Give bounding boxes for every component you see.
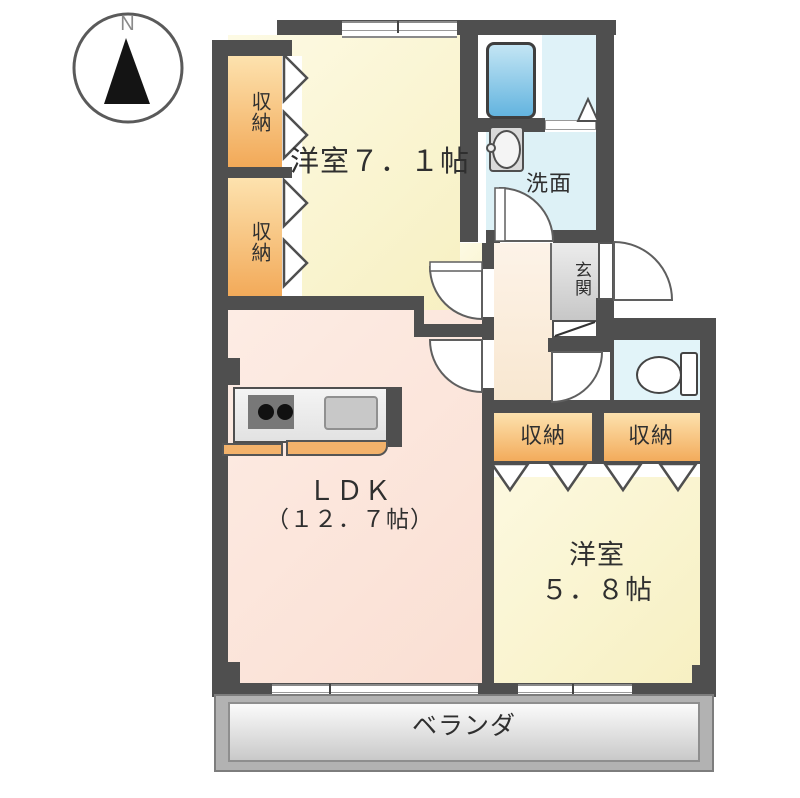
wall-wash-bottom-l: [486, 230, 500, 243]
window-top: [342, 21, 457, 38]
closet3-label: 収納: [500, 424, 586, 447]
front-door-leaf: [598, 242, 614, 300]
wall-bed1-ldk: [212, 296, 424, 310]
stove-burner-icon: [258, 404, 274, 420]
toilet-bowl-icon: [636, 356, 682, 394]
closet4-label: 収納: [608, 424, 694, 447]
hallway: [494, 243, 552, 402]
wall-corner-bl: [212, 662, 240, 695]
bedroom2-label-line1: 洋室: [497, 541, 697, 569]
wall-closet34-divider: [592, 413, 604, 463]
wall-mid-horizontal: [482, 400, 712, 413]
wall-entrance-bottom: [548, 338, 614, 352]
ldk-label-line1: ＬＤＫ: [250, 477, 450, 505]
door-arc-front-door: [614, 242, 672, 300]
wall-hall-entrance-line: [550, 243, 552, 320]
bedroom2-label-line2: ５．８帖: [497, 576, 697, 604]
wall-jog: [414, 296, 424, 337]
wall-counter-stub: [388, 387, 402, 447]
wall-left-lower: [212, 296, 228, 697]
wall-toilet-vest-line: [610, 352, 614, 400]
window-glass-line: [272, 692, 478, 693]
bath-sill: [545, 120, 596, 130]
bathtub: [486, 42, 536, 119]
entrance-step: [552, 320, 598, 338]
kitchen-ledge-left: [222, 443, 283, 456]
toilet-tank-icon: [680, 352, 698, 396]
toilet-vestibule: [552, 352, 612, 400]
closet2-label: 収納: [239, 204, 269, 280]
wall-closet34-bottom-line: [494, 461, 700, 464]
window-tick: [397, 21, 399, 33]
window-glass-line: [342, 30, 457, 31]
compass-north-label: N: [112, 14, 144, 35]
washbasin-bowl-icon: [492, 130, 521, 169]
entrance-label: 玄関: [564, 247, 590, 311]
kitchen-ledge-right: [286, 440, 388, 456]
wall-ldk-topright: [424, 324, 494, 337]
floor-plan: N 洋室７．１帖 洗面 玄関 収納 収納 収納 収納 ＬＤＫ （１２．７帖） 洋…: [0, 0, 800, 798]
wall-corner-br: [692, 665, 702, 695]
ldk-label-line2: （１２．７帖）: [240, 507, 460, 531]
wall-kitchen-stub: [212, 358, 240, 385]
window-glass-line: [518, 692, 632, 693]
wall-right-upper: [596, 20, 614, 242]
kitchen-sink-icon: [324, 396, 378, 430]
wall-hall-west-a: [482, 243, 494, 269]
closet1-label: 収納: [239, 74, 269, 150]
wall-right-lower: [700, 318, 716, 697]
balcony-label: ベランダ: [264, 713, 664, 739]
bedroom1-label: 洋室７．１帖: [270, 147, 490, 177]
stove-burner-icon: [277, 404, 293, 420]
closet-door-strip-bottom: [494, 463, 700, 477]
wall-toilet-top: [596, 318, 712, 340]
wall-ldk-east: [482, 400, 494, 697]
washroom-label: 洗面: [516, 172, 582, 195]
